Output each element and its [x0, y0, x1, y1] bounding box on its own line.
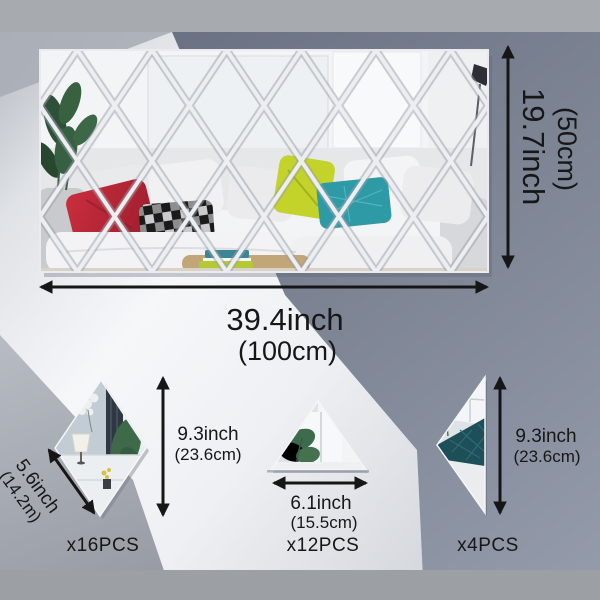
rhombus-height-label-inches: 9.3inch	[172, 424, 244, 445]
half-diamond-height-label-cm: (23.6cm)	[506, 447, 588, 466]
bottom-band	[0, 570, 600, 600]
main-mirror-panel	[31, 50, 492, 277]
panel-height-label-inches: 19.7inch	[518, 88, 549, 205]
triangle-count-label: x12PCS	[277, 535, 369, 556]
top-band	[0, 0, 600, 32]
panel-width-label-inches: 39.4inch	[180, 303, 390, 338]
half-diamond-count-label: x4PCS	[448, 535, 528, 556]
triangle-width-label-inches: 6.1inch	[285, 493, 357, 514]
half-diamond-height-label-inches: 9.3inch	[510, 426, 582, 447]
product-dimension-diagram: 19.7inch (50cm) 39.4inch (100cm) 5.6inch…	[0, 0, 600, 600]
panel-lattice-seams	[40, 50, 488, 272]
panel-height-label-cm: (50cm)	[553, 107, 580, 191]
triangle-width-label-cm: (15.5cm)	[282, 513, 366, 532]
rhombus-count-label: x16PCS	[58, 535, 148, 556]
rhombus-height-label-cm: (23.6cm)	[168, 445, 248, 464]
triangle-base-shadow	[267, 470, 369, 473]
panel-width-label-cm: (100cm)	[180, 336, 395, 366]
triangle-sill	[271, 462, 366, 470]
